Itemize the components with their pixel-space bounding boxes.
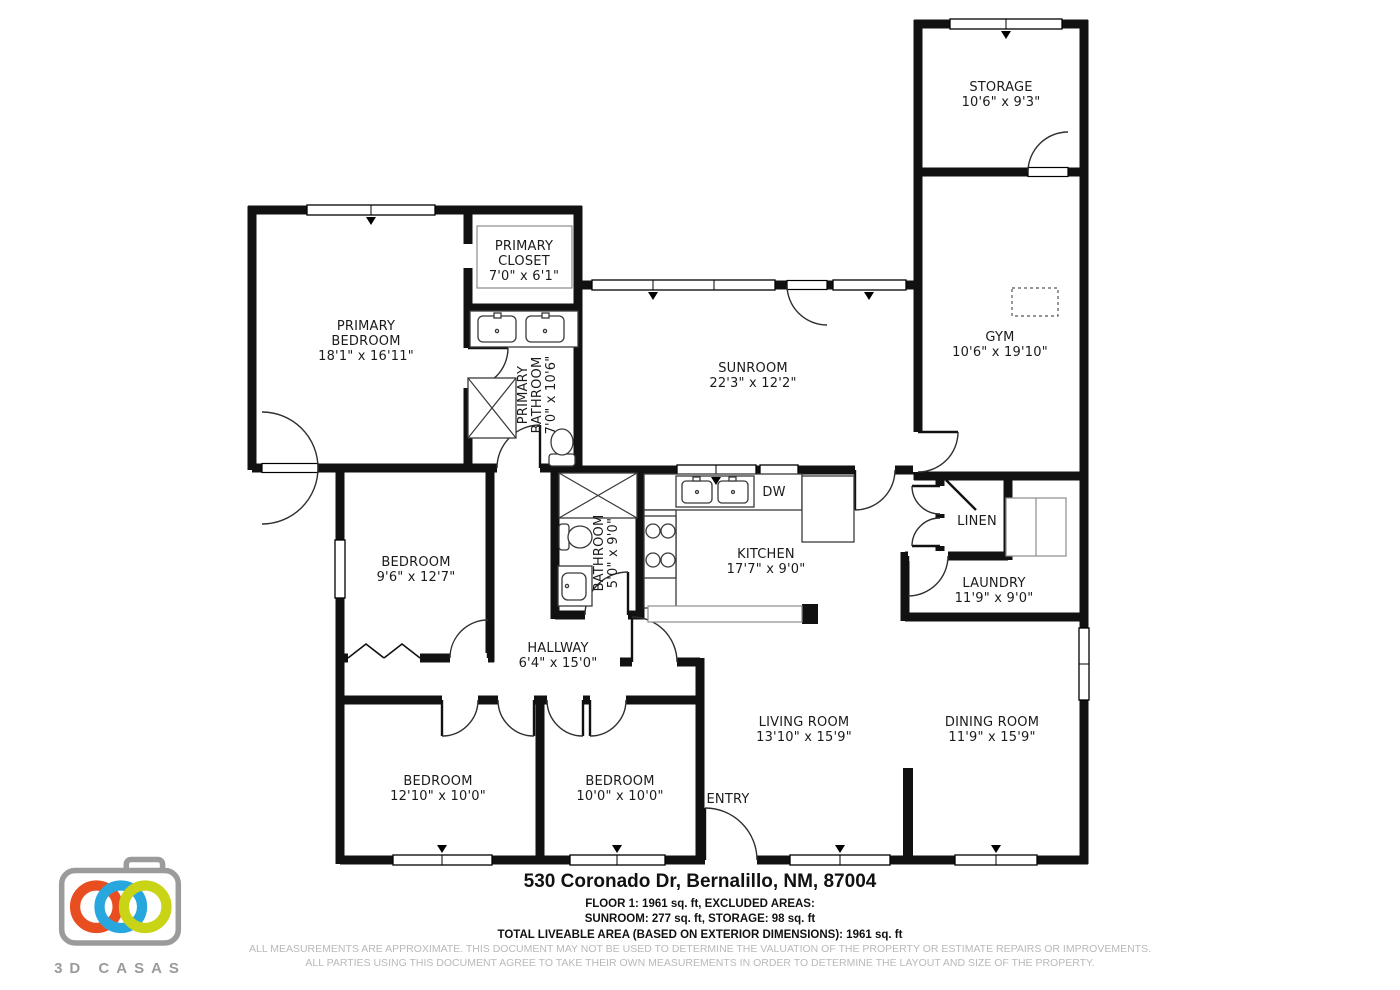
window (393, 855, 492, 865)
window (955, 855, 1037, 865)
room-label-living-room-dims: 13'10" x 15'9" (756, 730, 852, 745)
floor-plan-page: STORAGE 10'6" x 9'3" GYM 10'6" x 19'10" … (0, 0, 1400, 990)
door (590, 695, 626, 736)
refrigerator (802, 476, 854, 542)
room-label-storage-dims: 10'6" x 9'3" (962, 95, 1041, 110)
room-label-bathroom-dims: 5'0" x 9'0" (606, 518, 621, 588)
door (632, 617, 677, 667)
room-label-bedroom-left: BEDROOM (403, 774, 472, 789)
room-label-dining-room-dims: 11'9" x 15'9" (948, 730, 1035, 745)
floor-area-line: FLOOR 1: 1961 sq. ft, EXCLUDED AREAS: (0, 897, 1400, 911)
room-label-living-room: LIVING ROOM (759, 715, 850, 730)
window (790, 855, 890, 865)
toilet (559, 524, 592, 550)
window (592, 280, 775, 290)
door (450, 620, 488, 663)
room-label-primary-closet-dims: 7'0" x 6'1" (489, 269, 559, 284)
label-dishwasher: DW (762, 485, 785, 500)
sink (558, 566, 592, 606)
door-leaf-diagonal (946, 480, 976, 510)
door (912, 518, 945, 546)
window (833, 280, 906, 290)
room-label-storage: STORAGE (969, 80, 1032, 95)
room-label-primary-bathroom: PRIMARY (516, 366, 531, 424)
disclaimer-line-2: ALL PARTIES USING THIS DOCUMENT AGREE TO… (0, 957, 1400, 970)
door (1028, 132, 1068, 177)
property-address: 530 Coronado Dr, Bernalillo, NM, 87004 (0, 870, 1400, 894)
room-label-bedroom-left-dims: 12'10" x 10'0" (390, 789, 486, 804)
double-vanity-sink (470, 311, 578, 347)
window (950, 19, 1062, 29)
room-label-sunroom: SUNROOM (718, 361, 788, 376)
room-label-bedroom-right: BEDROOM (585, 774, 654, 789)
stove (644, 510, 676, 608)
door (912, 486, 945, 514)
floor-plan-drawing: STORAGE 10'6" x 9'3" GYM 10'6" x 19'10" … (0, 0, 1400, 870)
door (442, 695, 478, 736)
door (262, 412, 318, 524)
room-label-primary-bedroom: BEDROOM (331, 334, 400, 349)
room-label-hallway: HALLWAY (527, 641, 588, 656)
room-label-primary-closet: CLOSET (498, 254, 550, 269)
room-label-primary-bedroom: PRIMARY (337, 319, 395, 334)
door (913, 432, 958, 472)
room-label-gym: GYM (985, 330, 1014, 345)
closet-opening (463, 244, 473, 268)
window (1079, 628, 1089, 700)
kitchen-peninsula (648, 606, 802, 622)
label-linen: LINEN (957, 514, 997, 529)
room-label-sunroom-dims: 22'3" x 12'2" (709, 376, 796, 391)
room-label-laundry: LAUNDRY (962, 576, 1025, 591)
room-label-primary-bathroom: BATHROOM (530, 357, 545, 434)
room-label-primary-bedroom-dims: 18'1" x 16'11" (318, 349, 414, 364)
gym-equipment-outline (1012, 288, 1058, 316)
disclaimer-line-1: ALL MEASUREMENTS ARE APPROXIMATE. THIS D… (0, 943, 1400, 956)
room-label-primary-bathroom-dims: 7'0" x 10'6" (544, 356, 559, 435)
bifold-closet-doors (348, 644, 420, 663)
shower (559, 473, 637, 518)
door (908, 551, 948, 596)
window (335, 540, 345, 598)
room-label-dining-room: DINING ROOM (945, 715, 1039, 730)
door (547, 695, 583, 736)
total-area-line: TOTAL LIVEABLE AREA (BASED ON EXTERIOR D… (0, 928, 1400, 942)
room-label-bathroom: BATHROOM (592, 515, 607, 592)
room-label-kitchen: KITCHEN (737, 547, 795, 562)
window (307, 205, 435, 215)
excluded-areas-line: SUNROOM: 277 sq. ft, STORAGE: 98 sq. ft (0, 912, 1400, 926)
label-entry: ENTRY (706, 792, 749, 807)
door (855, 465, 895, 510)
plan-footer: 530 Coronado Dr, Bernalillo, NM, 87004 F… (0, 870, 1400, 971)
room-label-kitchen-dims: 17'7" x 9'0" (727, 562, 806, 577)
window (570, 855, 665, 865)
door (705, 808, 757, 865)
room-label-hallway-dims: 6'4" x 15'0" (519, 656, 598, 671)
room-label-bedroom-right-dims: 10'0" x 10'0" (576, 789, 663, 804)
door (787, 281, 827, 326)
room-label-bedroom-middle-dims: 9'6" x 12'7" (377, 570, 456, 585)
room-label-bedroom-middle: BEDROOM (381, 555, 450, 570)
door (498, 695, 534, 736)
room-label-laundry-dims: 11'9" x 9'0" (955, 591, 1034, 606)
room-label-primary-closet: PRIMARY (495, 239, 553, 254)
washer-dryer (1006, 498, 1066, 556)
room-label-gym-dims: 10'6" x 19'10" (952, 345, 1048, 360)
shower (468, 378, 516, 438)
